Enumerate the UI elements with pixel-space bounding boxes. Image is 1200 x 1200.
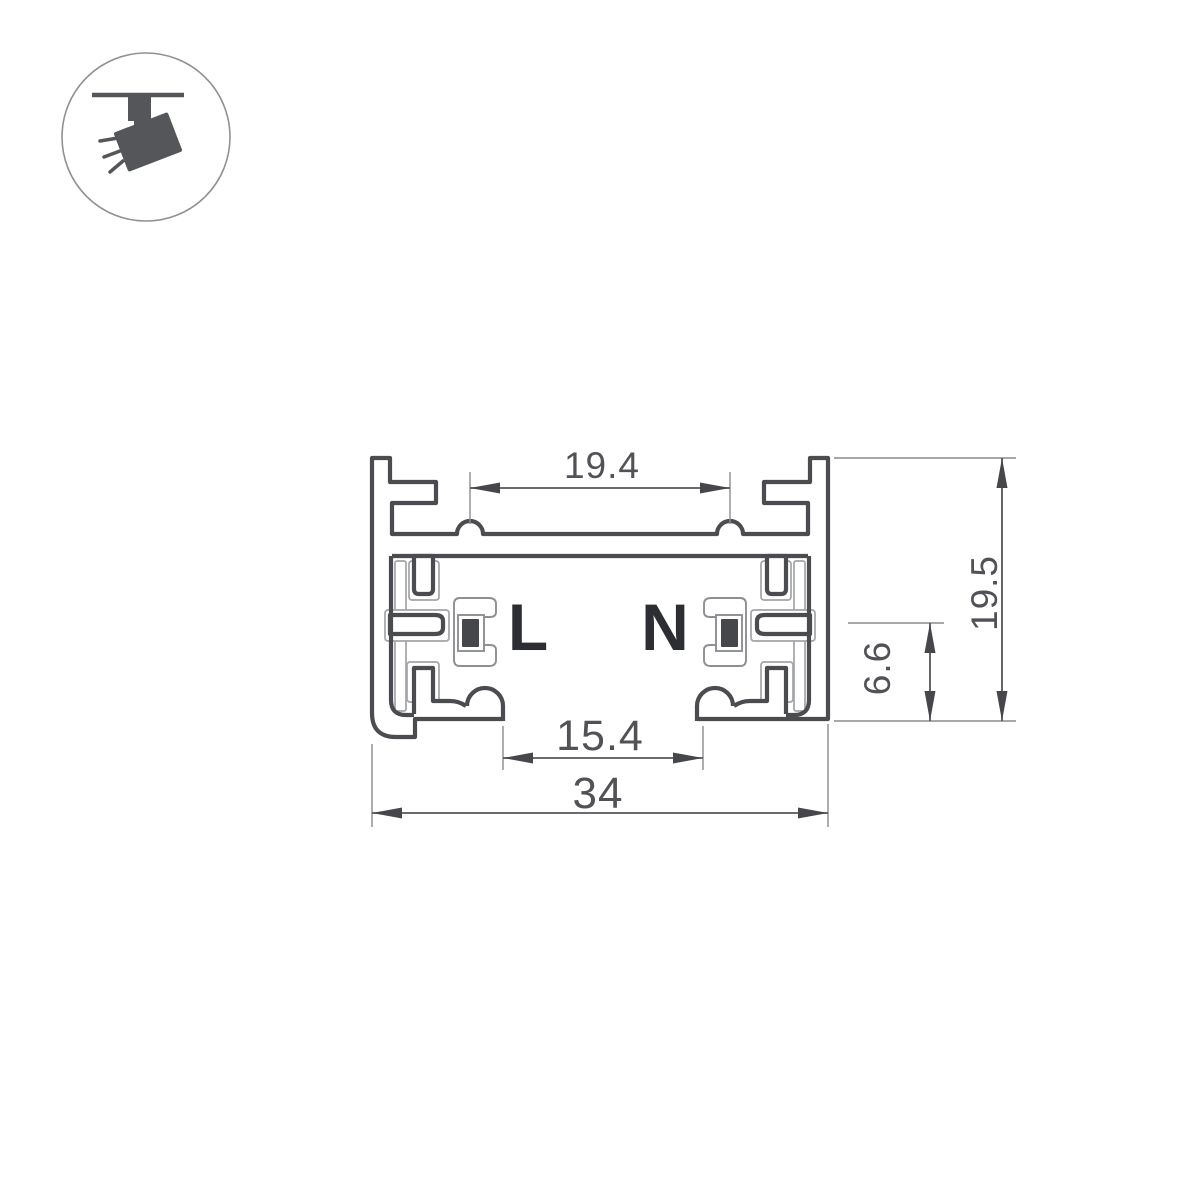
conductor-station-left — [385, 556, 503, 721]
comb-arm — [390, 615, 443, 634]
profile-cross-section: L N — [372, 458, 828, 737]
dim-top-groove-spacing: 19.4 — [470, 445, 730, 524]
dim-text-bottom-opening: 15.4 — [556, 712, 644, 760]
track-profile-technical-drawing: L N 19.4 15.4 34 — [0, 0, 1200, 1200]
conductor-station-right — [697, 556, 815, 721]
label-live: L — [508, 590, 548, 664]
conductor-bar — [462, 619, 479, 647]
dim-bottom-opening: 15.4 — [503, 712, 703, 770]
dim-text-overall-width: 34 — [573, 769, 624, 818]
dim-conductor-height: 6.6 — [848, 623, 944, 721]
label-neutral: N — [641, 590, 689, 664]
track-spotlight-icon — [62, 53, 230, 221]
lip-thumb — [467, 688, 503, 721]
dim-text-conductor-height: 6.6 — [857, 641, 898, 695]
profile-outer-outline — [372, 458, 828, 737]
dim-text-overall-height: 19.5 — [964, 555, 1005, 631]
hanging-tab — [414, 556, 433, 594]
rising-tab-mask — [414, 667, 432, 714]
drawing-page: L N 19.4 15.4 34 — [0, 0, 1200, 1200]
dim-text-top-groove: 19.4 — [564, 445, 640, 486]
